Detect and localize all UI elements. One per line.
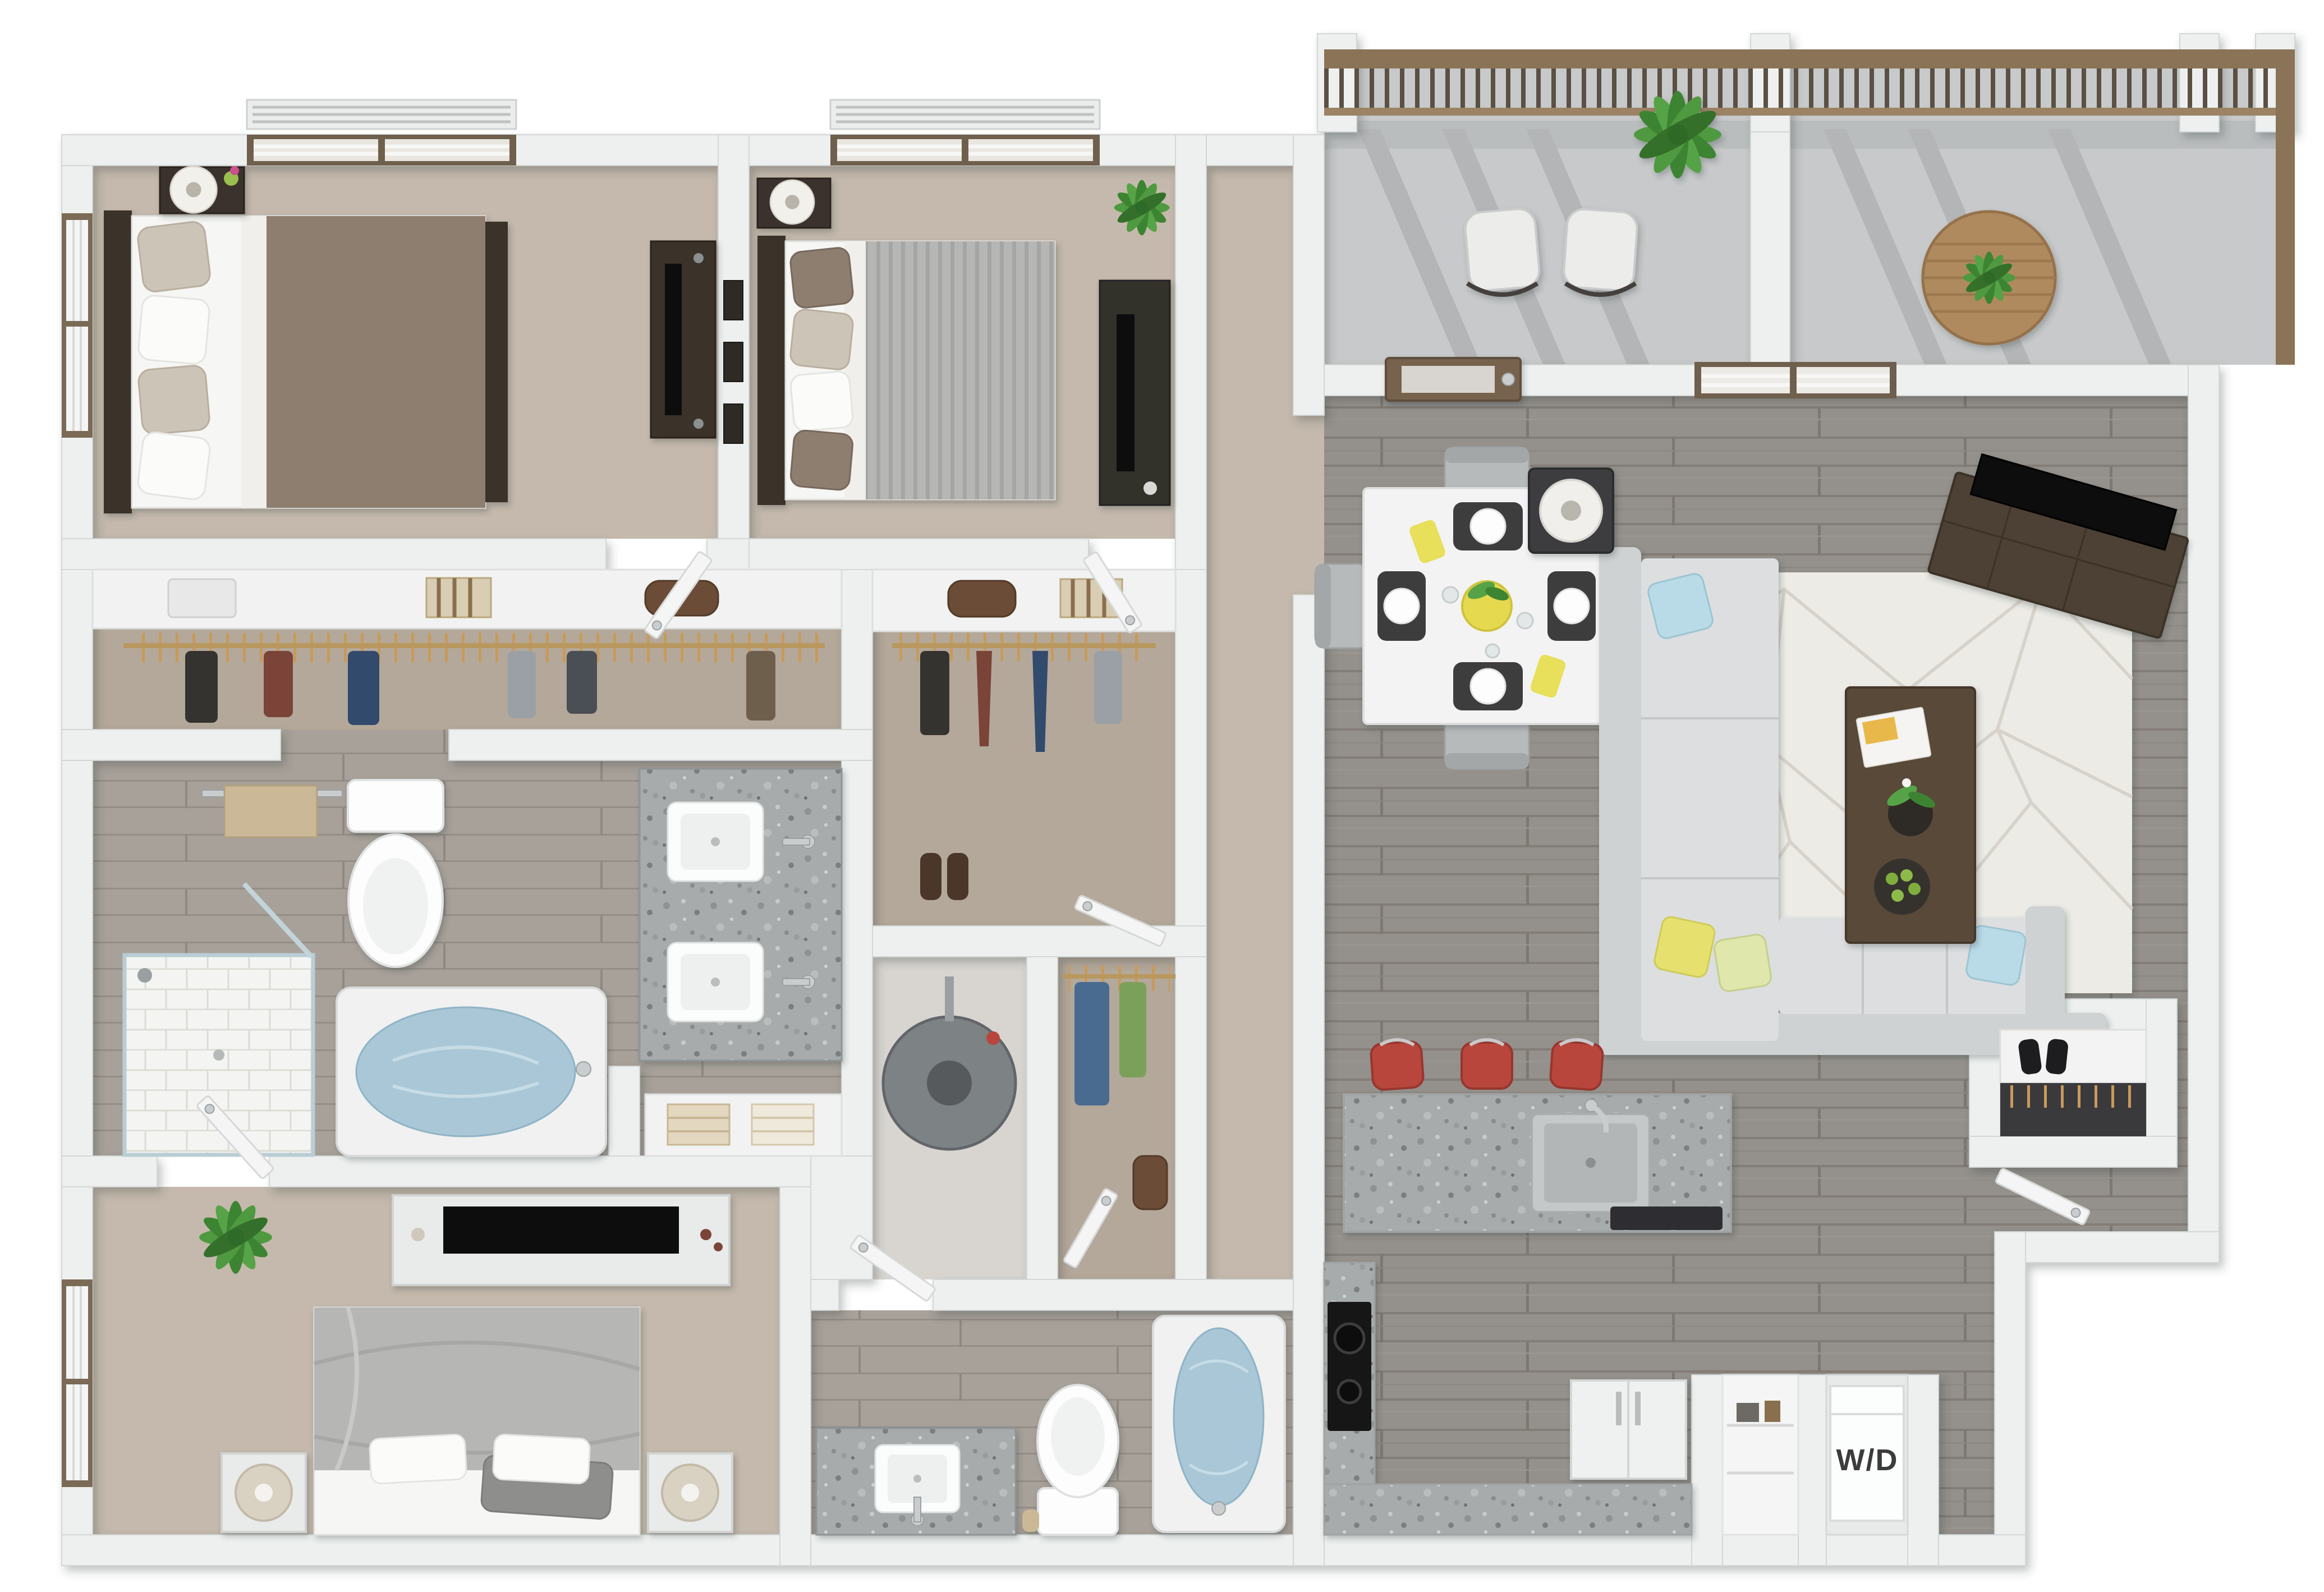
master-vanity	[640, 769, 842, 1061]
tub-faucet	[1212, 1502, 1225, 1515]
bedroom2-desk	[1100, 281, 1170, 505]
coffee-table	[1846, 687, 1975, 943]
master-bed	[314, 1307, 640, 1535]
valve	[986, 1031, 1000, 1045]
water-heater-pipe	[945, 976, 954, 1021]
bedroom2-tv	[1117, 314, 1135, 471]
master-tv	[443, 1206, 679, 1254]
cooktop	[1328, 1302, 1371, 1431]
glass	[1443, 587, 1458, 603]
drain	[213, 1049, 224, 1061]
headboard	[104, 210, 132, 513]
master-nightstand-left	[222, 1453, 306, 1532]
pantry-item	[1765, 1401, 1780, 1422]
bedroom2-top-window	[830, 135, 1100, 166]
bag	[1133, 1156, 1167, 1209]
pantry-item	[1737, 1403, 1759, 1422]
storage-box	[168, 579, 236, 617]
master-toilet	[348, 780, 443, 967]
bedroom1-top-window	[247, 135, 516, 166]
floor-plan-render: W/D	[0, 0, 2324, 1592]
towel	[224, 786, 317, 837]
stool	[1462, 1043, 1512, 1089]
side-table	[1529, 469, 1613, 553]
tulip	[230, 166, 239, 175]
towel-stack	[668, 1104, 729, 1145]
tub-water	[1174, 1328, 1264, 1506]
duvet	[267, 216, 485, 508]
railing-top-rail	[1324, 49, 2295, 68]
bedroom1-dresser	[651, 241, 715, 438]
striped-box	[426, 578, 491, 617]
bath2-tub	[1153, 1316, 1285, 1532]
hanging-jeans	[1074, 982, 1109, 1105]
railing-right-rail	[2276, 53, 2295, 365]
glass	[1486, 644, 1499, 658]
pantry-niche	[1723, 1375, 1798, 1535]
towel-stack	[752, 1104, 814, 1145]
railing-bottom-rail	[1324, 108, 2295, 116]
glass	[1517, 613, 1533, 628]
tub-faucet	[576, 1062, 591, 1076]
hanging-shirt	[1119, 982, 1146, 1077]
closet-rod	[123, 643, 825, 648]
closet-rod	[1063, 974, 1175, 979]
balcony-table	[1923, 212, 2055, 344]
dishwasher	[1610, 1206, 1723, 1230]
closet-shoes	[920, 853, 968, 900]
exterior-shutters	[247, 100, 1100, 129]
entry-door	[1386, 358, 1521, 401]
master-bedroom-window	[62, 1279, 93, 1487]
patio-chair	[1464, 208, 1541, 295]
entry-door-handle	[1502, 373, 1514, 386]
stool	[1550, 1041, 1604, 1090]
linen-shelf	[645, 1094, 842, 1156]
bedroom2-nightstand	[757, 178, 830, 228]
bedroom1-tv	[665, 264, 682, 415]
fruit-bowl	[1874, 859, 1930, 915]
kitchen-island	[1344, 1094, 1731, 1232]
stool	[1370, 1041, 1424, 1090]
living-room-window	[1694, 362, 1896, 398]
duffel-bag	[948, 581, 1016, 617]
shower-head	[137, 968, 152, 983]
headboard	[757, 236, 786, 505]
footboard	[485, 222, 508, 502]
bedroom1-bed	[104, 210, 508, 513]
master-dresser	[393, 1195, 729, 1285]
striped-duvet	[864, 241, 1055, 499]
washer-dryer-label: W/D	[1836, 1443, 1899, 1477]
bedroom1-nightstand	[160, 166, 244, 213]
shoe	[2045, 1038, 2069, 1075]
bar-stools	[1370, 1040, 1604, 1090]
master-nightstand-right	[648, 1453, 732, 1532]
bedroom2-bed	[757, 236, 1055, 505]
patio-chair	[1563, 208, 1638, 295]
master-tub	[337, 988, 606, 1156]
bedroom1-left-window	[62, 213, 93, 438]
bedroom2-art-frames	[724, 281, 743, 443]
coat-closet	[2000, 1030, 2146, 1136]
tub-water	[356, 1007, 575, 1136]
closet-rod	[892, 643, 1156, 648]
railing-balusters	[1324, 68, 2295, 110]
toilet-paper	[1022, 1510, 1039, 1532]
bath2-vanity	[816, 1428, 1016, 1535]
